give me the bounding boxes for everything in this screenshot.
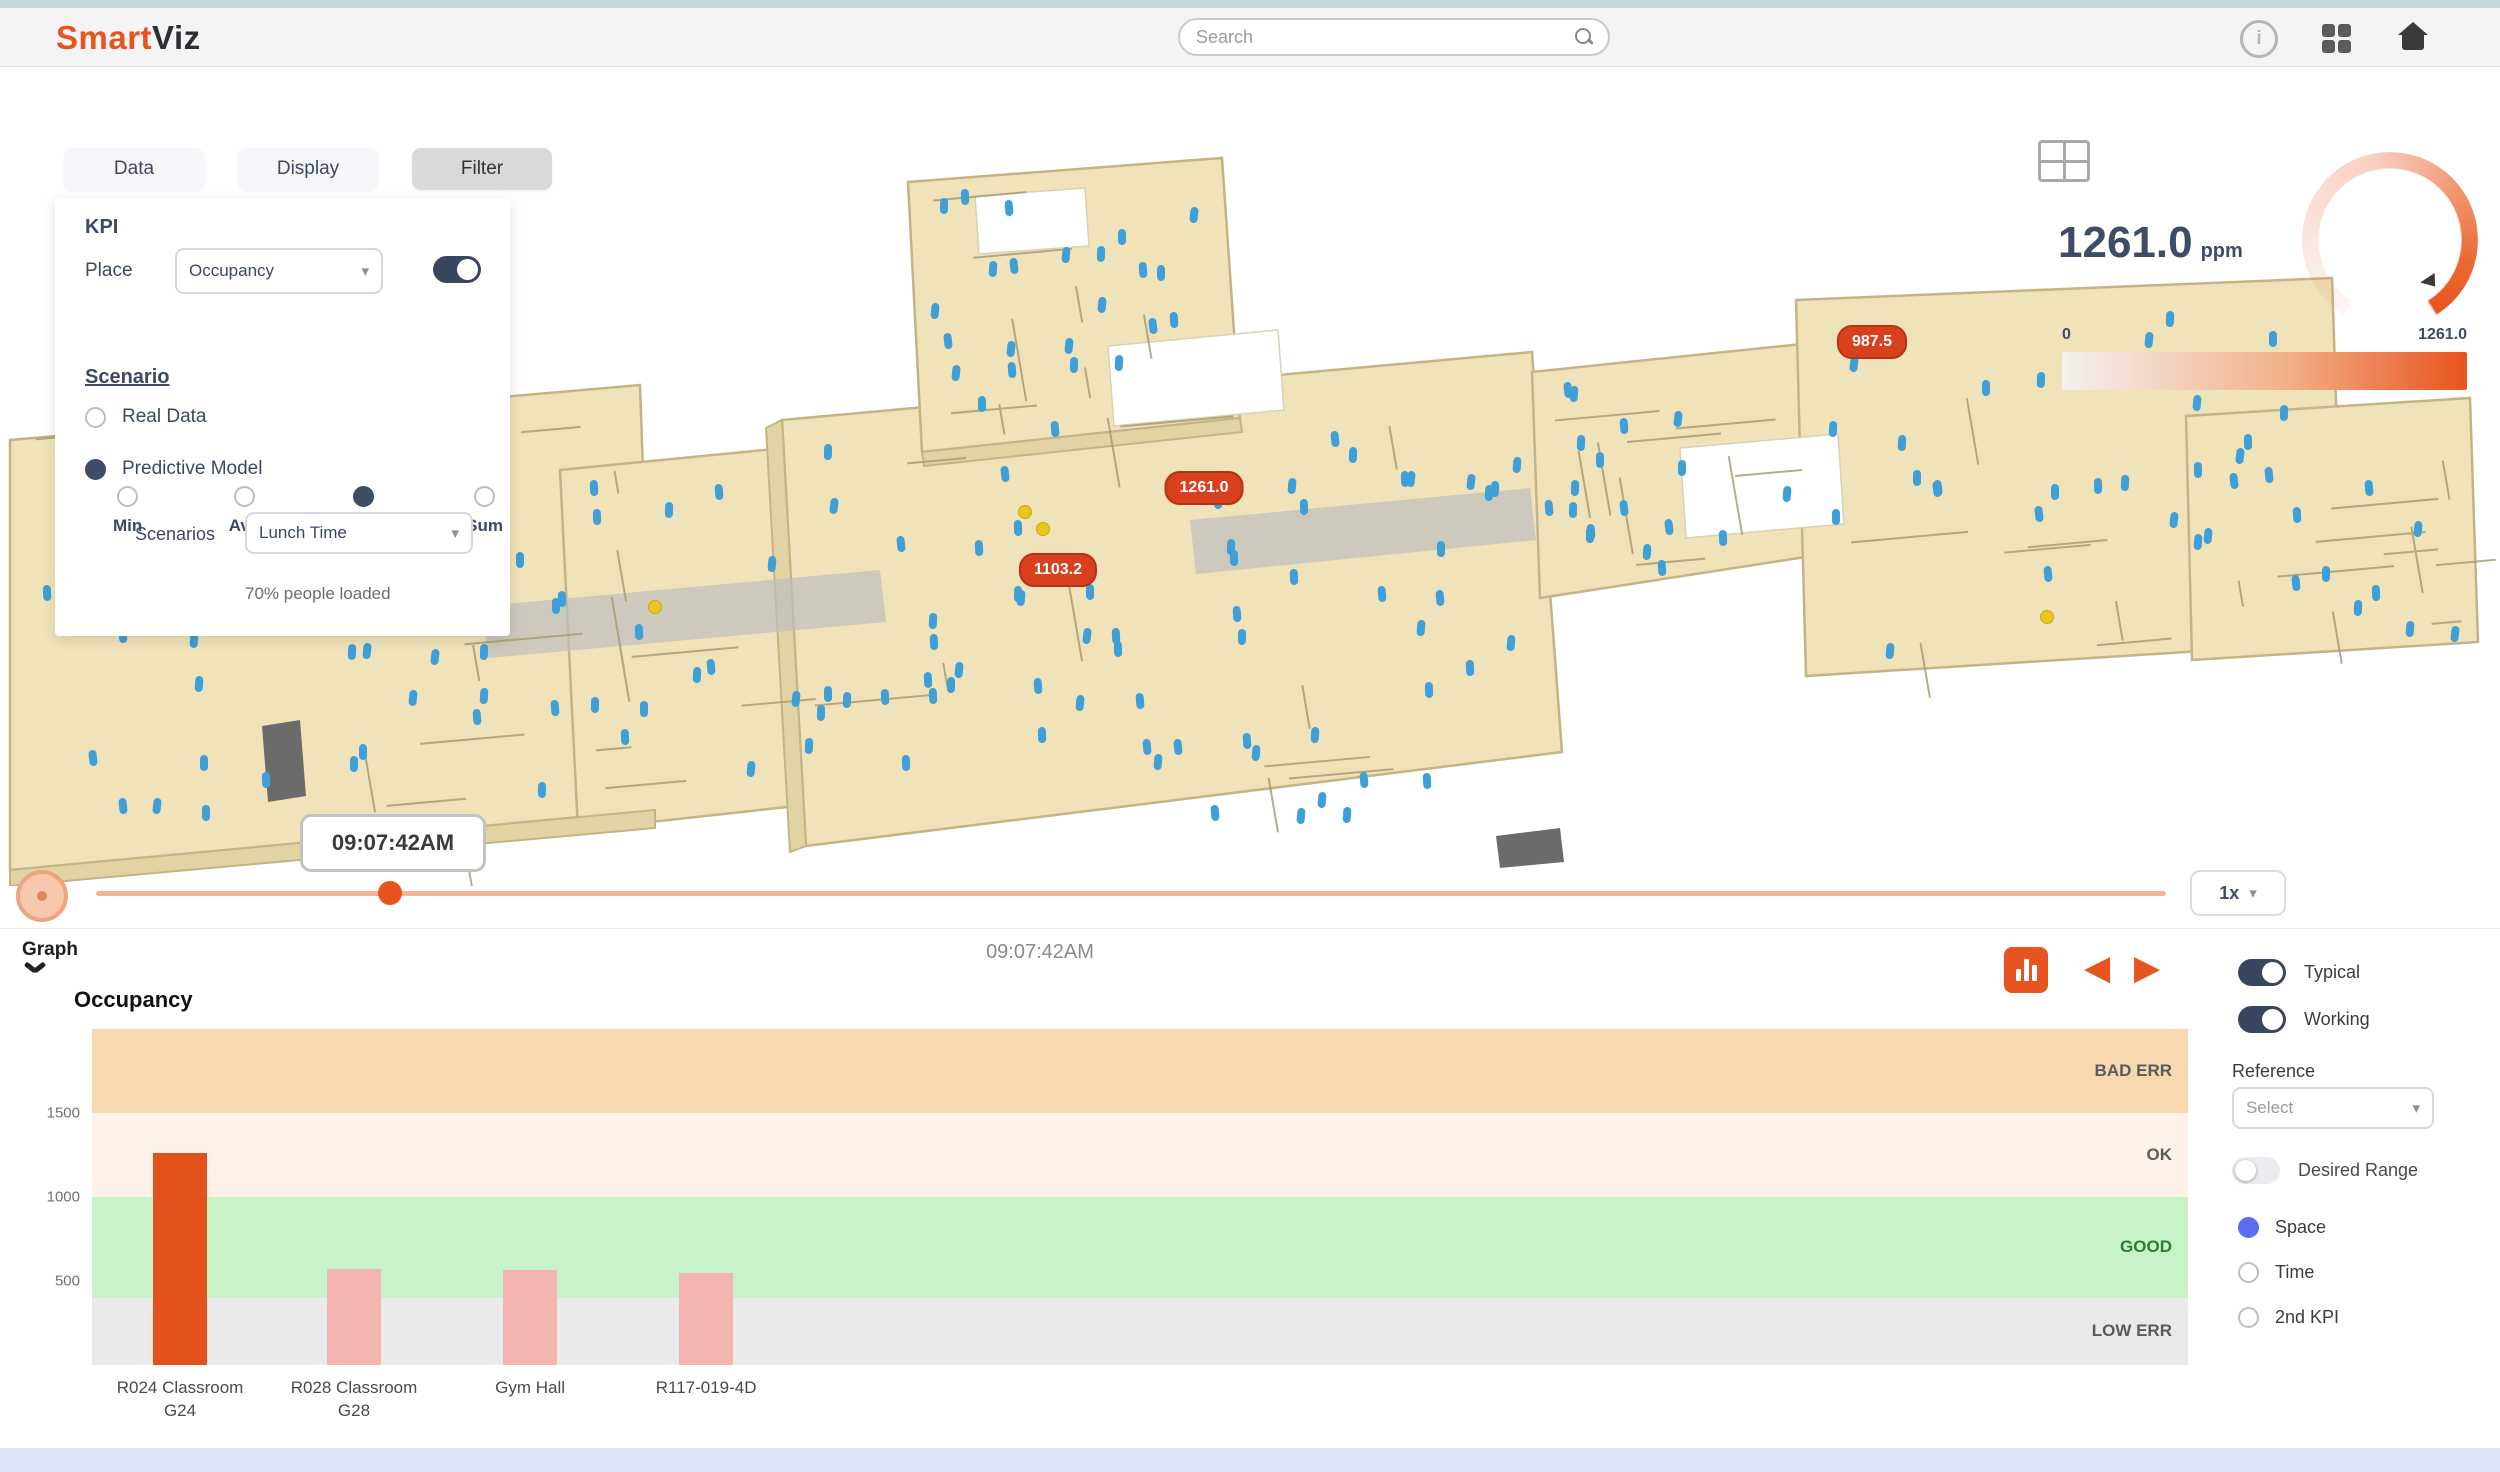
- chevron-down-icon: ▾: [2412, 1099, 2420, 1117]
- person-marker: [558, 591, 567, 607]
- person-marker: [593, 509, 601, 525]
- person-marker: [1097, 246, 1106, 262]
- person-marker: [194, 676, 203, 692]
- person-marker: [1050, 420, 1059, 437]
- graph-section-label: Graph: [22, 939, 78, 961]
- person-marker: [2244, 434, 2252, 450]
- person-marker: [843, 692, 852, 708]
- alert-dot: [1036, 522, 1050, 536]
- person-marker: [1435, 590, 1444, 607]
- person-marker: [928, 612, 937, 628]
- person-marker: [2037, 372, 2046, 388]
- person-marker: [1569, 502, 1577, 518]
- person-marker: [1596, 452, 1604, 468]
- person-marker: [2194, 533, 2203, 550]
- chart-band-ok: OK: [92, 1113, 2188, 1197]
- radio-icon[interactable]: [2238, 1217, 2259, 1238]
- home-icon[interactable]: [2396, 22, 2430, 56]
- person-marker: [1349, 447, 1357, 463]
- timeline-thumb[interactable]: [378, 881, 402, 905]
- footer-strip: [0, 1448, 2500, 1472]
- gauge-arc: [2302, 152, 2478, 328]
- person-marker: [1359, 772, 1369, 789]
- compare-option-label: Time: [2275, 1262, 2314, 1283]
- person-marker: [516, 552, 524, 568]
- play-button[interactable]: [16, 870, 68, 922]
- place-select[interactable]: Occupancy ▾: [175, 248, 383, 294]
- person-marker: [1014, 520, 1023, 536]
- radio-icon[interactable]: [234, 486, 255, 507]
- filter-panel: KPI Place Occupancy ▾ MinAvgMaxSum Scena…: [55, 198, 510, 636]
- person-marker: [1007, 361, 1016, 378]
- band-label: GOOD: [2120, 1237, 2172, 1257]
- scenario-option-label: Real Data: [122, 406, 207, 428]
- person-marker: [1913, 470, 1921, 486]
- person-marker: [1210, 805, 1219, 822]
- room-value-badge[interactable]: 987.5: [1837, 325, 1907, 359]
- person-marker: [2229, 473, 2239, 490]
- person-marker: [1112, 628, 1121, 644]
- person-marker: [824, 686, 832, 702]
- next-arrow-icon[interactable]: ▶: [2134, 951, 2160, 985]
- speed-value: 1x: [2219, 883, 2239, 904]
- logo-part-viz: Viz: [152, 19, 201, 56]
- band-label: LOW ERR: [2092, 1321, 2172, 1341]
- top-bar: SmartViz i: [0, 8, 2500, 67]
- bar-r117-019-4d[interactable]: [679, 1273, 733, 1365]
- chart-title: Occupancy: [74, 987, 193, 1013]
- chevron-down-icon: ▾: [2249, 884, 2257, 902]
- scenario-option-predictive-model[interactable]: Predictive Model: [85, 458, 262, 480]
- person-marker: [2413, 520, 2423, 537]
- graph-timestamp: 09:07:42AM: [880, 941, 1200, 964]
- chart-band-good: GOOD: [92, 1197, 2188, 1298]
- person-marker: [816, 705, 825, 721]
- person-marker: [1658, 560, 1667, 577]
- person-marker: [947, 677, 955, 693]
- person-marker: [589, 480, 598, 496]
- scale-max: 1261.0: [2418, 326, 2467, 344]
- person-marker: [1009, 258, 1019, 275]
- person-marker: [824, 444, 833, 460]
- toggle-label: Working: [2304, 1009, 2370, 1030]
- person-marker: [1423, 773, 1432, 790]
- person-marker: [1296, 807, 1305, 824]
- kpi-value: 1261.0: [2058, 218, 2193, 267]
- person-marker: [1577, 435, 1586, 451]
- kpi-gauge: [2302, 152, 2478, 328]
- color-scale-labels: 0 1261.0: [2062, 326, 2467, 344]
- radio-icon[interactable]: [2238, 1307, 2259, 1328]
- person-marker: [961, 189, 970, 205]
- compare-mode-options: SpaceTime2nd KPI: [2238, 1217, 2339, 1328]
- person-marker: [1004, 200, 1013, 217]
- person-marker: [1982, 380, 1990, 396]
- person-marker: [1330, 431, 1340, 448]
- app-logo[interactable]: SmartViz: [56, 19, 201, 57]
- person-marker: [1425, 682, 1434, 698]
- person-marker: [349, 756, 357, 772]
- occupancy-bar-chart: BAD ERROKGOODLOW ERR15001000500R024 Clas…: [92, 1029, 2188, 1365]
- person-marker: [550, 699, 559, 716]
- radio-icon[interactable]: [2238, 1262, 2259, 1283]
- person-marker: [202, 805, 210, 821]
- search-bar[interactable]: [1178, 18, 1610, 56]
- person-marker: [1229, 550, 1237, 566]
- person-marker: [929, 634, 938, 650]
- radio-icon[interactable]: [85, 459, 106, 480]
- person-marker: [634, 623, 643, 639]
- person-marker: [1156, 265, 1164, 281]
- person-marker: [480, 644, 489, 660]
- person-marker: [1437, 541, 1445, 557]
- bar-r028-classroom[interactable]: [327, 1269, 381, 1365]
- chart-band-bad-err: BAD ERR: [92, 1029, 2188, 1113]
- person-marker: [951, 365, 961, 382]
- radio-icon[interactable]: [353, 486, 374, 507]
- compare-option-label: Space: [2275, 1217, 2326, 1238]
- band-label: BAD ERR: [2095, 1061, 2172, 1081]
- person-marker: [988, 261, 997, 277]
- person-marker: [1718, 530, 1726, 546]
- person-marker: [359, 744, 367, 760]
- person-marker: [1290, 569, 1299, 585]
- scenarios-select[interactable]: Lunch Time ▾: [245, 512, 473, 554]
- person-marker: [620, 729, 629, 745]
- logo-part-smart: Smart: [56, 19, 152, 56]
- alert-dot: [2040, 610, 2054, 624]
- person-marker: [2353, 600, 2362, 616]
- search-icon[interactable]: [1574, 27, 1594, 47]
- graph-section: Graph 09:07:42AM Occupancy ◀ ▶ TypicalWo…: [0, 928, 2500, 1449]
- search-input[interactable]: [1194, 26, 1574, 49]
- person-marker: [924, 672, 933, 688]
- bar-chart-icon: [2016, 959, 2037, 981]
- reference-select[interactable]: Select ▾: [2232, 1087, 2434, 1129]
- person-marker: [746, 761, 755, 778]
- person-marker: [1642, 544, 1651, 561]
- person-marker: [640, 701, 648, 717]
- person-marker: [715, 484, 724, 501]
- person-marker: [2321, 566, 2329, 582]
- person-marker: [1117, 229, 1125, 245]
- room-value-badge[interactable]: 1103.2: [1019, 553, 1097, 587]
- person-marker: [348, 644, 357, 660]
- typical-toggle[interactable]: [2238, 959, 2286, 986]
- compare-option-label: 2nd KPI: [2275, 1307, 2339, 1328]
- timeline-time-tooltip: 09:07:42AM: [300, 814, 486, 872]
- compare-option-2nd-kpi[interactable]: 2nd KPI: [2238, 1307, 2339, 1328]
- prev-arrow-icon[interactable]: ◀: [2084, 951, 2110, 985]
- scale-min: 0: [2062, 326, 2071, 344]
- person-marker: [1070, 357, 1078, 373]
- y-axis-tick: 500: [22, 1273, 80, 1290]
- person-marker: [1114, 355, 1123, 371]
- alert-dot: [648, 600, 662, 614]
- person-marker: [2371, 585, 2380, 601]
- kpi-unit: ppm: [2201, 240, 2243, 262]
- scenarios-label: Scenarios: [135, 524, 215, 545]
- person-marker: [1782, 486, 1791, 503]
- person-marker: [1378, 585, 1387, 602]
- person-marker: [1300, 499, 1308, 515]
- people-loaded-note: 70% people loaded: [245, 584, 391, 604]
- scenario-option-real-data[interactable]: Real Data: [85, 406, 207, 428]
- person-marker: [362, 643, 372, 660]
- tab-display[interactable]: Display: [238, 148, 378, 190]
- person-marker: [1138, 261, 1147, 278]
- person-marker: [479, 688, 488, 705]
- person-marker: [538, 782, 546, 798]
- person-marker: [2293, 507, 2302, 523]
- person-marker: [2194, 462, 2202, 478]
- person-marker: [1006, 341, 1015, 358]
- person-marker: [1620, 418, 1629, 434]
- person-marker: [902, 755, 911, 771]
- scenario-heading: Scenario: [85, 366, 169, 389]
- kpi-readout: 1261.0ppm: [2058, 218, 2243, 268]
- timeline-slider[interactable]: [96, 891, 2166, 896]
- person-marker: [1569, 386, 1578, 402]
- export-chart-button[interactable]: [2004, 947, 2048, 993]
- person-marker: [978, 396, 986, 412]
- chevron-down-icon: ▾: [451, 524, 459, 542]
- person-marker: [2094, 478, 2102, 494]
- scenarios-select-value: Lunch Time: [259, 523, 347, 543]
- person-marker: [665, 502, 673, 518]
- apps-grid-icon[interactable]: [2322, 24, 2352, 54]
- person-marker: [262, 772, 271, 788]
- compare-option-time[interactable]: Time: [2238, 1262, 2339, 1283]
- person-marker: [1885, 643, 1894, 660]
- person-marker: [2043, 566, 2052, 583]
- person-marker: [1232, 605, 1241, 622]
- person-marker: [1142, 738, 1151, 755]
- graph-toggle-group: TypicalWorking: [2238, 959, 2370, 1033]
- person-marker: [791, 690, 801, 707]
- desired-range-toggle[interactable]: [2232, 1157, 2280, 1184]
- person-marker: [43, 585, 52, 601]
- scenario-option-label: Predictive Model: [122, 458, 262, 480]
- person-marker: [1544, 499, 1553, 516]
- tab-filter[interactable]: Filter: [412, 148, 552, 190]
- person-marker: [1342, 806, 1351, 823]
- person-marker: [1064, 338, 1074, 355]
- person-marker: [118, 797, 128, 814]
- info-icon[interactable]: i: [2240, 20, 2278, 58]
- person-marker: [1034, 677, 1043, 694]
- chevron-down-icon: ▾: [361, 262, 369, 280]
- person-marker: [940, 198, 948, 214]
- person-marker: [2169, 512, 2179, 529]
- x-axis-label: R117-019-4D: [586, 1377, 826, 1400]
- top-accent-strip: [0, 0, 2500, 8]
- person-marker: [930, 302, 939, 319]
- y-axis-tick: 1000: [22, 1189, 80, 1206]
- person-marker: [591, 697, 599, 713]
- person-marker: [2280, 405, 2288, 421]
- person-marker: [1586, 524, 1595, 540]
- bar-gym-hall[interactable]: [503, 1270, 557, 1365]
- person-marker: [1243, 733, 1252, 750]
- alert-dot: [1018, 505, 1032, 519]
- working-toggle[interactable]: [2238, 1006, 2286, 1033]
- filter-panel-tabs: DataDisplayFilter: [64, 148, 552, 190]
- person-marker: [1170, 312, 1179, 329]
- band-label: OK: [2147, 1145, 2173, 1165]
- room-value-badge[interactable]: 1261.0: [1165, 471, 1244, 505]
- person-marker: [1086, 584, 1094, 600]
- person-marker: [928, 688, 937, 704]
- person-marker: [1832, 509, 1840, 525]
- person-marker: [2051, 484, 2059, 500]
- person-marker: [974, 540, 983, 556]
- color-scale-bar: [2062, 352, 2467, 390]
- person-marker: [1829, 421, 1838, 437]
- person-marker: [1678, 460, 1686, 476]
- person-marker: [200, 755, 208, 771]
- person-marker: [1014, 586, 1022, 602]
- place-label: Place: [85, 260, 133, 282]
- person-marker: [805, 738, 814, 754]
- toggle-row-working: Working: [2238, 1006, 2370, 1033]
- radio-icon[interactable]: [117, 486, 138, 507]
- radio-icon[interactable]: [474, 486, 495, 507]
- person-marker: [954, 661, 963, 678]
- toggle-label: Typical: [2304, 962, 2360, 983]
- person-marker: [2121, 475, 2130, 491]
- kpi-toggle[interactable]: [433, 256, 481, 283]
- person-marker: [2166, 311, 2175, 327]
- reference-label: Reference: [2232, 1061, 2315, 1082]
- person-marker: [1038, 727, 1046, 743]
- compare-option-space[interactable]: Space: [2238, 1217, 2339, 1238]
- reference-select-value: Select: [2246, 1098, 2293, 1118]
- toggle-row-typical: Typical: [2238, 959, 2370, 986]
- person-marker: [706, 659, 715, 676]
- person-marker: [1237, 628, 1245, 644]
- y-axis-tick: 1500: [22, 1105, 80, 1122]
- person-marker: [472, 708, 481, 725]
- person-marker: [1484, 485, 1493, 501]
- playback-speed-select[interactable]: 1x ▾: [2190, 870, 2286, 916]
- desired-range-label: Desired Range: [2298, 1160, 2418, 1181]
- collapse-chevron-icon[interactable]: [22, 963, 52, 983]
- place-select-value: Occupancy: [189, 261, 274, 281]
- bar-r024-classroom[interactable]: [153, 1153, 207, 1365]
- person-marker: [2034, 506, 2044, 523]
- grid-view-icon[interactable]: [2038, 140, 2090, 182]
- kpi-heading: KPI: [85, 216, 118, 239]
- tab-data[interactable]: Data: [64, 148, 204, 190]
- person-marker: [880, 689, 889, 705]
- radio-icon[interactable]: [85, 407, 106, 428]
- chart-band-low-err: LOW ERR: [92, 1298, 2188, 1365]
- person-marker: [1466, 660, 1475, 676]
